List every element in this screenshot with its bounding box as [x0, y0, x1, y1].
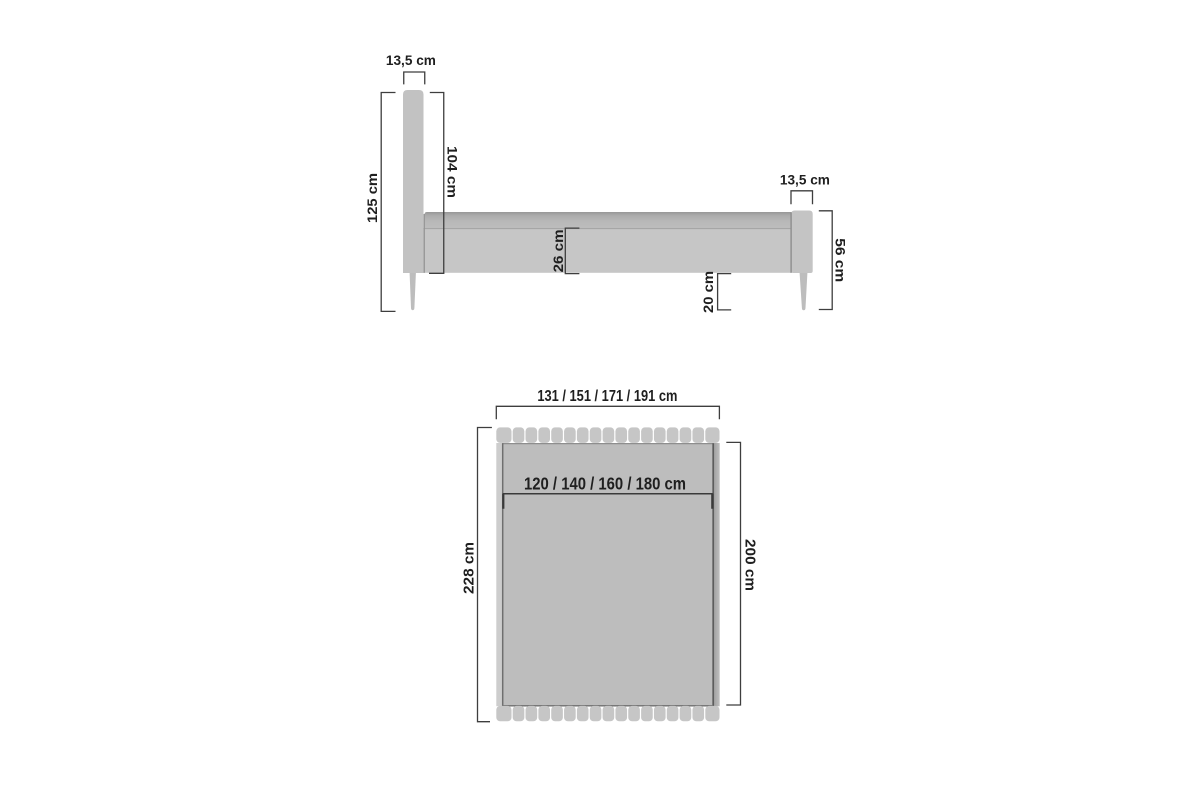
svg-text:26 cm: 26 cm [550, 229, 566, 272]
svg-text:228 cm: 228 cm [460, 542, 477, 594]
svg-text:125 cm: 125 cm [364, 173, 380, 223]
svg-text:13,5 cm: 13,5 cm [780, 172, 830, 188]
svg-text:200 cm: 200 cm [742, 539, 759, 591]
svg-text:131 / 151 / 171 / 191 cm: 131 / 151 / 171 / 191 cm [537, 388, 677, 405]
svg-text:20 cm: 20 cm [700, 271, 716, 313]
svg-text:120 / 140 / 160 / 180 cm: 120 / 140 / 160 / 180 cm [524, 473, 686, 493]
svg-text:56 cm: 56 cm [833, 238, 849, 282]
svg-text:104 cm: 104 cm [444, 146, 460, 198]
svg-text:13,5 cm: 13,5 cm [386, 52, 436, 68]
